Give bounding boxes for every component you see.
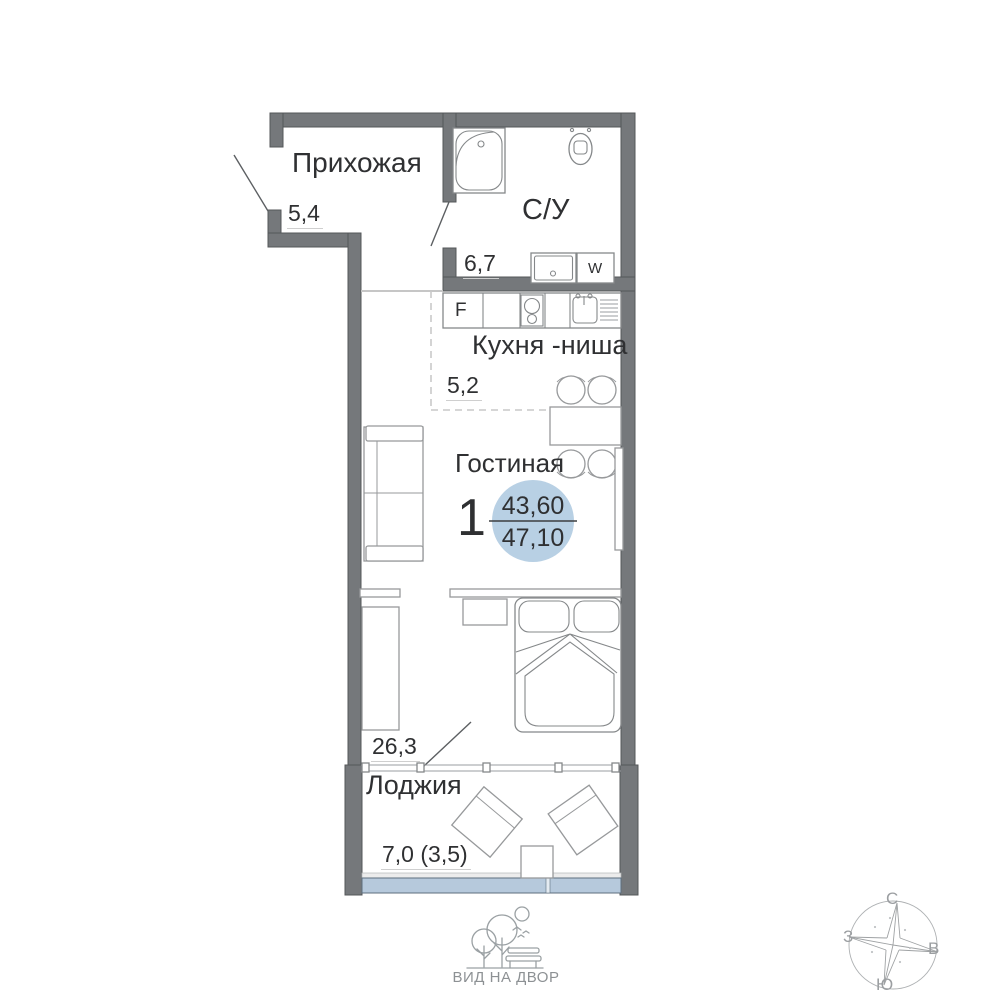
compass-star: [849, 903, 938, 985]
wall-right: [621, 113, 635, 772]
tree-icon: [487, 915, 517, 967]
bathroom-sink: [531, 253, 576, 283]
room-label-kitchen: Кухня -ниша: [472, 330, 627, 361]
room-area-kitchen: 5,2: [446, 372, 482, 401]
loggia-chair-2: [548, 785, 618, 855]
bathroom-door-swing: [431, 202, 449, 246]
bench-icon: [506, 948, 541, 968]
shelf-left: [360, 589, 400, 597]
wall-loggia-right-pillar: [620, 765, 638, 895]
unit-number: 1: [457, 488, 486, 548]
unit-area-main: 43,60: [491, 492, 575, 521]
floor-plan-page: Прихожая 5,4 С/У 6,7 Кухня -ниша 5,2 Гос…: [0, 0, 1000, 1000]
room-area-hallway: 5,4: [287, 200, 323, 229]
balcony-door-swing: [424, 722, 471, 766]
wall-entry-stub-top: [270, 113, 283, 147]
wall-loggia-left-pillar: [345, 765, 362, 895]
compass-rose: [849, 901, 938, 989]
tree-icon: [472, 929, 496, 967]
glazing-band: [362, 878, 621, 893]
courtyard-view-label: ВИД НА ДВОР: [428, 969, 584, 986]
wardrobe: [362, 607, 399, 730]
room-area-bathroom: 6,7: [463, 250, 499, 279]
room-label-hallway: Прихожая: [292, 147, 422, 179]
unit-area-total: 47,10: [491, 524, 575, 553]
room-area-loggia: 7,0 (3,5): [381, 841, 471, 870]
compass-east-label: В: [928, 939, 939, 959]
wall-panel: [615, 448, 623, 550]
room-label-living: Гостиная: [455, 448, 564, 479]
courtyard-view-icon: [467, 907, 543, 968]
washer-label: W: [588, 260, 602, 277]
room-area-living: 26,3: [371, 733, 420, 762]
double-bed: [515, 598, 621, 732]
sun-icon: [515, 907, 529, 921]
compass-west-label: З: [843, 927, 853, 947]
kitchen-counter: [443, 293, 621, 328]
wall-hall-bottom: [268, 233, 361, 247]
room-label-loggia: Лоджия: [366, 770, 462, 801]
loggia-glazing: [362, 873, 621, 893]
wall-left: [348, 233, 361, 772]
shower: [453, 128, 505, 193]
room-label-bathroom: С/У: [522, 194, 569, 227]
compass-south-label: Ю: [876, 975, 893, 995]
compass-north-label: С: [886, 889, 898, 909]
loggia-table: [521, 846, 553, 878]
nightstand: [463, 599, 507, 625]
dining-table: [550, 407, 621, 445]
toilet: [569, 128, 592, 164]
entry-door-swing: [234, 155, 268, 211]
sofa: [364, 426, 423, 561]
shelf-divider: [450, 589, 621, 597]
fridge-label: F: [455, 300, 467, 322]
